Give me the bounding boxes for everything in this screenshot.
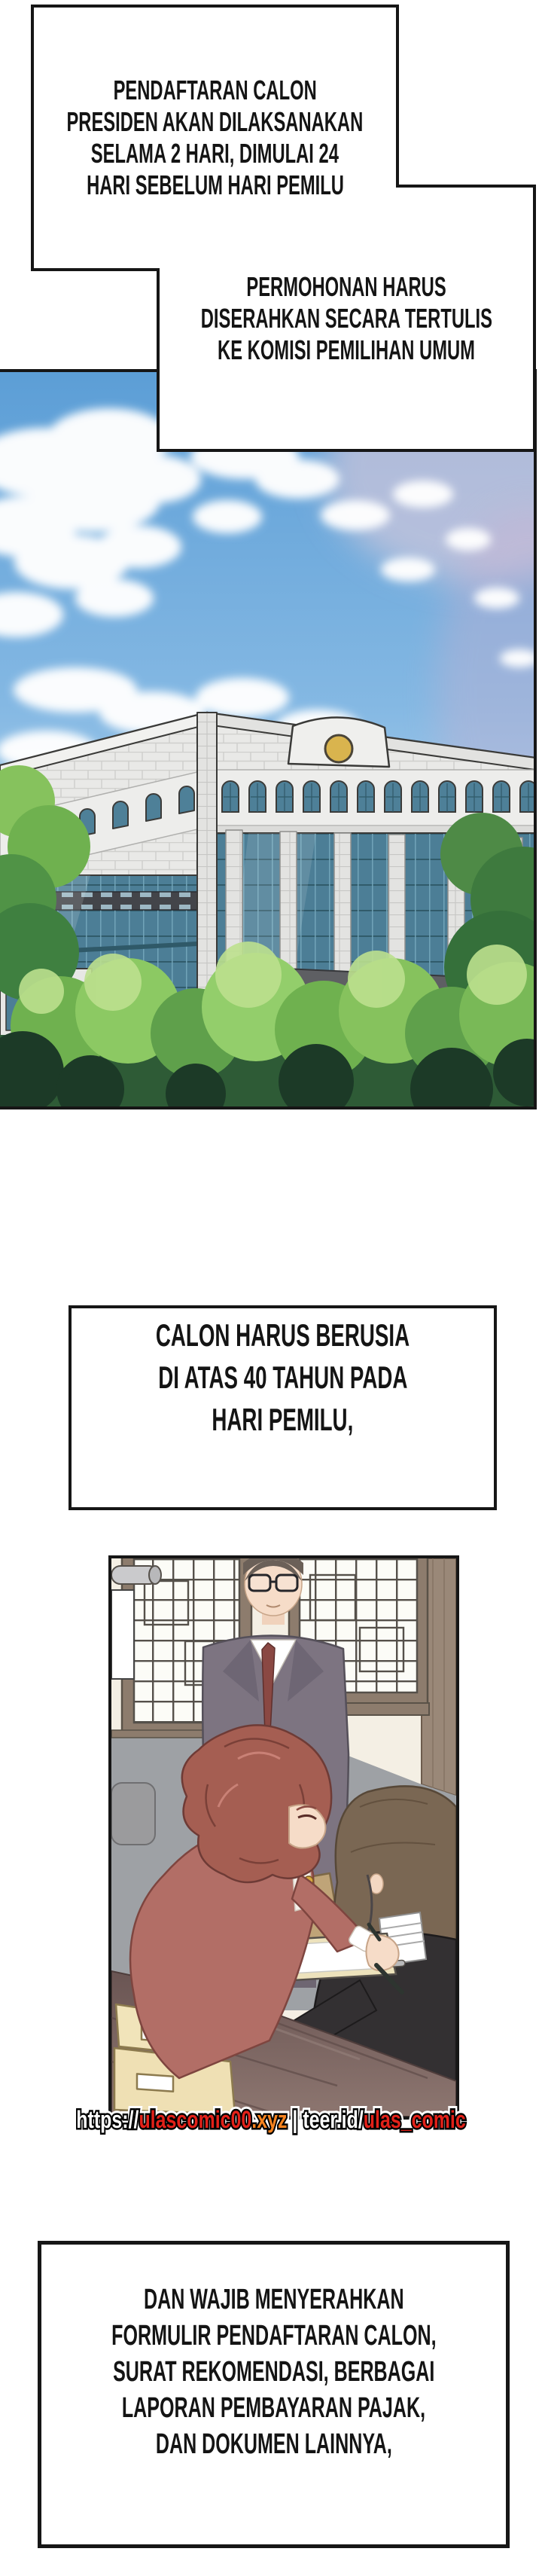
caption-line: KE KOMISI PEMILIHAN UMUM bbox=[218, 334, 475, 366]
watermark-tld: .xyz bbox=[251, 2106, 287, 2133]
white-panel bbox=[111, 1590, 134, 1679]
caption-box-3: CALON HARUS BERUSIA DI ATAS 40 TAHUN PAD… bbox=[69, 1305, 497, 1510]
caption-line: SELAMA 2 HARI, DIMULAI 24 bbox=[91, 138, 339, 169]
caption-line: SURAT REKOMENDASI, BERBAGAI bbox=[113, 2354, 434, 2390]
caption-box-4: DAN WAJIB MENYERAHKAN FORMULIR PENDAFTAR… bbox=[38, 2241, 510, 2548]
caption-line: CALON HARUS BERUSIA bbox=[156, 1314, 410, 1357]
wall-pipe bbox=[111, 1566, 161, 1584]
panel-office-scene bbox=[108, 1555, 459, 2120]
auburn-hair bbox=[182, 1725, 331, 1882]
office-scene-art bbox=[111, 1558, 456, 2117]
caption-line: DI ATAS 40 TAHUN PADA bbox=[158, 1357, 407, 1399]
panel-building-scene bbox=[0, 369, 537, 1109]
caption-line: FORMULIR PENDAFTARAN CALON, bbox=[111, 2318, 436, 2354]
caption-line: DISERAHKAN SECARA TERTULIS bbox=[200, 303, 492, 334]
caption-line: DAN DOKUMEN LAINNYA, bbox=[155, 2426, 391, 2462]
caption-line: PENDAFTARAN CALON bbox=[113, 75, 316, 106]
caption-line: HARI PEMILU, bbox=[212, 1399, 354, 1441]
watermark-separator: | teer.id/ bbox=[287, 2106, 363, 2133]
caption-box-2: PERMOHONAN HARUS DISERAHKAN SECARA TERTU… bbox=[158, 186, 534, 450]
gold-emblem-icon bbox=[325, 735, 352, 762]
caption-line: PERMOHONAN HARUS bbox=[246, 271, 446, 303]
chair bbox=[111, 1783, 155, 1845]
caption-line: LAPORAN PEMBAYARAN PAJAK, bbox=[122, 2390, 425, 2426]
building-scene-art bbox=[0, 372, 537, 1109]
watermark-handle: ulas_comic bbox=[364, 2106, 466, 2133]
caption-line: DAN WAJIB MENYERAHKAN bbox=[144, 2281, 404, 2318]
watermark-protocol: https:// bbox=[76, 2106, 139, 2133]
watermark-site: ulascomic00 bbox=[139, 2106, 251, 2133]
caption-line: PRESIDEN AKAN DILAKSANAKAN bbox=[67, 106, 364, 138]
watermark-text: https://ulascomic00.xyz | teer.id/ulas_c… bbox=[59, 2103, 483, 2136]
